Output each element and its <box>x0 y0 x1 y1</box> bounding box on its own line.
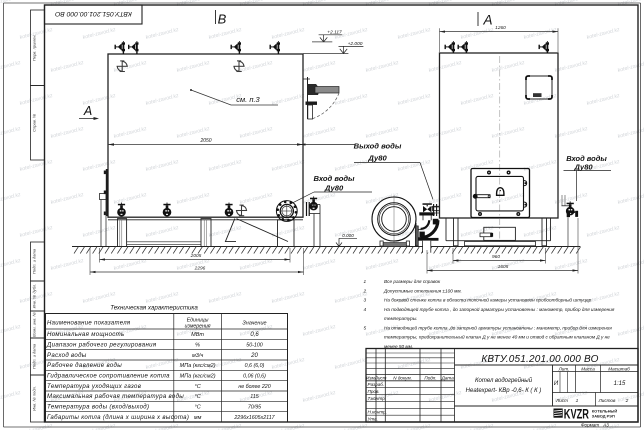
svg-text:%: % <box>195 343 200 349</box>
svg-text:Гидравлическое сопротивление к: Гидравлическое сопротивление котла <box>47 373 170 380</box>
svg-text:Вход воды: Вход воды <box>313 174 355 183</box>
svg-text:Значение: Значение <box>242 321 266 327</box>
svg-text:На подводящей трубе котла ,: На подводящей трубе котла , до запорной … <box>384 306 615 312</box>
svg-text:м3/ч: м3/ч <box>192 353 203 359</box>
svg-text:А: А <box>83 104 92 118</box>
svg-text:Формат: Формат <box>581 423 599 428</box>
svg-text:температуры, предохранительный: температуры, предохранительный клапан Д … <box>384 334 610 340</box>
svg-text:Н.контр.: Н.контр. <box>368 410 387 415</box>
svg-text:°С: °С <box>195 394 201 400</box>
svg-text:Допустимые отклонения ±100 мм: Допустимые отклонения ±100 мм. <box>383 288 462 293</box>
svg-text:2296: 2296 <box>194 266 206 272</box>
svg-text:КВТУ.051.201.00.000 ВО: КВТУ.051.201.00.000 ВО <box>481 354 598 365</box>
svg-text:Габариты котла (длина х ширина: Габариты котла (длина х ширина х высота) <box>47 414 189 421</box>
svg-text:В: В <box>218 12 227 27</box>
svg-text:1260: 1260 <box>495 25 506 31</box>
svg-text:А: А <box>482 13 492 28</box>
svg-text:Утв.: Утв. <box>368 417 378 422</box>
svg-text:Дата: Дата <box>441 375 455 380</box>
svg-text:3: 3 <box>364 298 367 303</box>
svg-text:На боковой стенке котла в обла: На боковой стенке котла в области топочн… <box>384 297 592 303</box>
svg-text:Листов: Листов <box>598 398 616 403</box>
svg-text:Вход воды: Вход воды <box>566 154 607 163</box>
svg-text:Подп.: Подп. <box>424 375 436 380</box>
svg-text:не более 220: не более 220 <box>238 384 270 390</box>
svg-text:2: 2 <box>363 288 367 293</box>
svg-text:мм: мм <box>194 415 202 421</box>
svg-text:Ду80: Ду80 <box>367 154 387 163</box>
svg-text:0.000: 0.000 <box>342 233 354 238</box>
svg-text:Максимальная рабочая температу: Максимальная рабочая температура воды <box>47 393 184 400</box>
svg-text:Перв. примен.: Перв. примен. <box>32 34 37 61</box>
svg-text:70/95: 70/95 <box>248 405 261 411</box>
svg-text:КВТУ.051.201.00.000 ВО: КВТУ.051.201.00.000 ВО <box>54 10 131 17</box>
svg-text:115: 115 <box>250 394 258 400</box>
svg-text:960: 960 <box>492 254 500 260</box>
svg-text:5: 5 <box>364 325 367 330</box>
svg-text:И: И <box>554 381 559 387</box>
svg-text:0,6 (6,0): 0,6 (6,0) <box>245 363 265 369</box>
svg-text:0,06 (0,6): 0,06 (0,6) <box>243 374 266 380</box>
svg-text:Справ. №: Справ. № <box>32 113 37 132</box>
svg-text:4: 4 <box>364 307 367 312</box>
svg-text:Котел водогрейный: Котел водогрейный <box>475 377 533 384</box>
svg-text:МПа (кгс/см2): МПа (кгс/см2) <box>180 374 216 380</box>
svg-text:KVZR: KVZR <box>564 405 589 422</box>
svg-text:Лист: Лист <box>374 375 387 380</box>
svg-text:Разраб.: Разраб. <box>368 382 385 387</box>
svg-text:Температура воды (вход/выход): Температура воды (вход/выход) <box>47 404 149 411</box>
svg-text:20: 20 <box>250 353 258 359</box>
svg-text:Лит.: Лит. <box>558 366 570 371</box>
svg-text:2050: 2050 <box>199 138 211 144</box>
svg-text:1: 1 <box>576 398 579 404</box>
svg-text:2: 2 <box>625 398 629 404</box>
svg-text:0,6: 0,6 <box>250 332 259 338</box>
svg-text:см. п.3: см. п.3 <box>236 95 260 104</box>
svg-text:МПа (кгс/см2): МПа (кгс/см2) <box>180 363 216 369</box>
svg-text:Подп. и дата: Подп. и дата <box>32 248 37 274</box>
svg-text:А3: А3 <box>602 423 609 428</box>
svg-text:температуры.: температуры. <box>384 316 418 321</box>
svg-text:Температура уходящих газов: Температура уходящих газов <box>47 383 141 390</box>
svg-text:N докум.: N докум. <box>393 375 412 380</box>
svg-text:Инв. № подл.: Инв. № подл. <box>32 386 37 411</box>
svg-text:Heatexpert- КВр -0,6- К ( К ): Heatexpert- КВр -0,6- К ( К ) <box>466 388 542 394</box>
svg-text:Ду80: Ду80 <box>324 184 344 193</box>
svg-text:Наименование показателя: Наименование показателя <box>47 321 131 327</box>
svg-text:°С: °С <box>195 384 201 390</box>
svg-text:50-100: 50-100 <box>246 343 263 349</box>
svg-text:Техническая характеристика: Техническая характеристика <box>110 305 198 312</box>
svg-text:Взам. инв. №: Взам. инв. № <box>32 311 37 336</box>
svg-text:Инв. № дубл.: Инв. № дубл. <box>32 284 37 309</box>
svg-text:1:15: 1:15 <box>614 381 626 387</box>
svg-text:Лист: Лист <box>555 398 568 403</box>
svg-text:Номинальная мощность: Номинальная мощность <box>47 331 125 338</box>
svg-text:Рабочее давление воды: Рабочее давление воды <box>47 362 122 369</box>
svg-text:МВт: МВт <box>191 332 204 338</box>
svg-text:Все размеры для справок: Все размеры для справок <box>384 279 441 284</box>
svg-text:Расход воды: Расход воды <box>47 352 87 359</box>
svg-text:1605: 1605 <box>498 264 509 270</box>
svg-text:измерения: измерения <box>185 324 211 330</box>
svg-text:На отводящей трубе котла ,до з: На отводящей трубе котла ,до запорной ар… <box>384 324 612 330</box>
svg-text:2296х1605х2117: 2296х1605х2117 <box>233 415 275 421</box>
svg-text:2005: 2005 <box>190 253 202 259</box>
svg-text:Масса: Масса <box>581 366 595 371</box>
svg-text:1: 1 <box>364 279 367 284</box>
svg-text:Выход воды: Выход воды <box>354 142 402 151</box>
svg-text:Пров.: Пров. <box>368 389 380 394</box>
svg-text:ЗАВОД РЭП: ЗАВОД РЭП <box>592 413 615 418</box>
svg-text:Масштаб: Масштаб <box>608 366 630 371</box>
svg-text:°С: °С <box>195 405 201 411</box>
svg-text:Т.контр.: Т.контр. <box>368 396 387 401</box>
svg-text:Диапазон рабочего регулировани: Диапазон рабочего регулирования <box>46 342 157 349</box>
svg-text:Подп. и дата: Подп. и дата <box>32 343 37 369</box>
